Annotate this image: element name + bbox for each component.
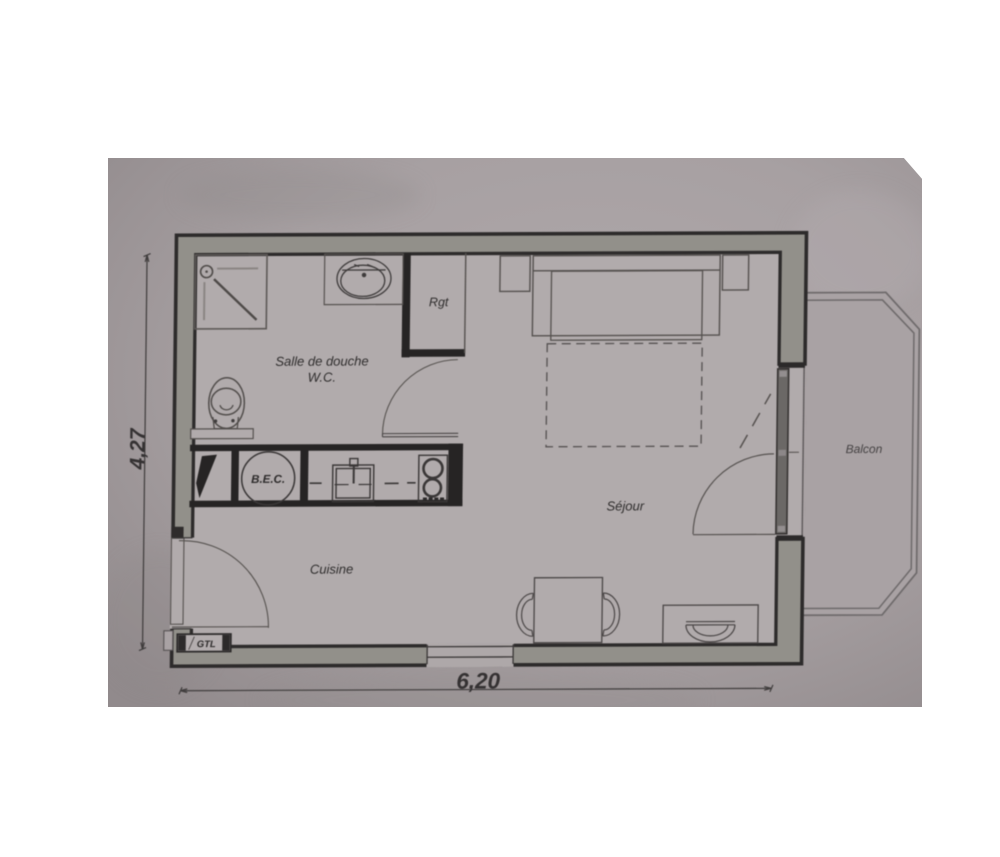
svg-text:Salle de douche: Salle de douche bbox=[275, 353, 368, 368]
svg-text:Balcon: Balcon bbox=[846, 442, 883, 456]
svg-text:W.C.: W.C. bbox=[308, 370, 337, 385]
svg-text:B.E.C.: B.E.C. bbox=[251, 474, 285, 486]
svg-text:4,27: 4,27 bbox=[126, 427, 150, 470]
svg-text:Séjour: Séjour bbox=[606, 498, 644, 513]
svg-text:Rgt: Rgt bbox=[429, 295, 449, 309]
svg-text:GTL: GTL bbox=[197, 639, 216, 650]
svg-text:Cuisine: Cuisine bbox=[310, 562, 354, 577]
svg-text:6,20: 6,20 bbox=[456, 668, 501, 693]
